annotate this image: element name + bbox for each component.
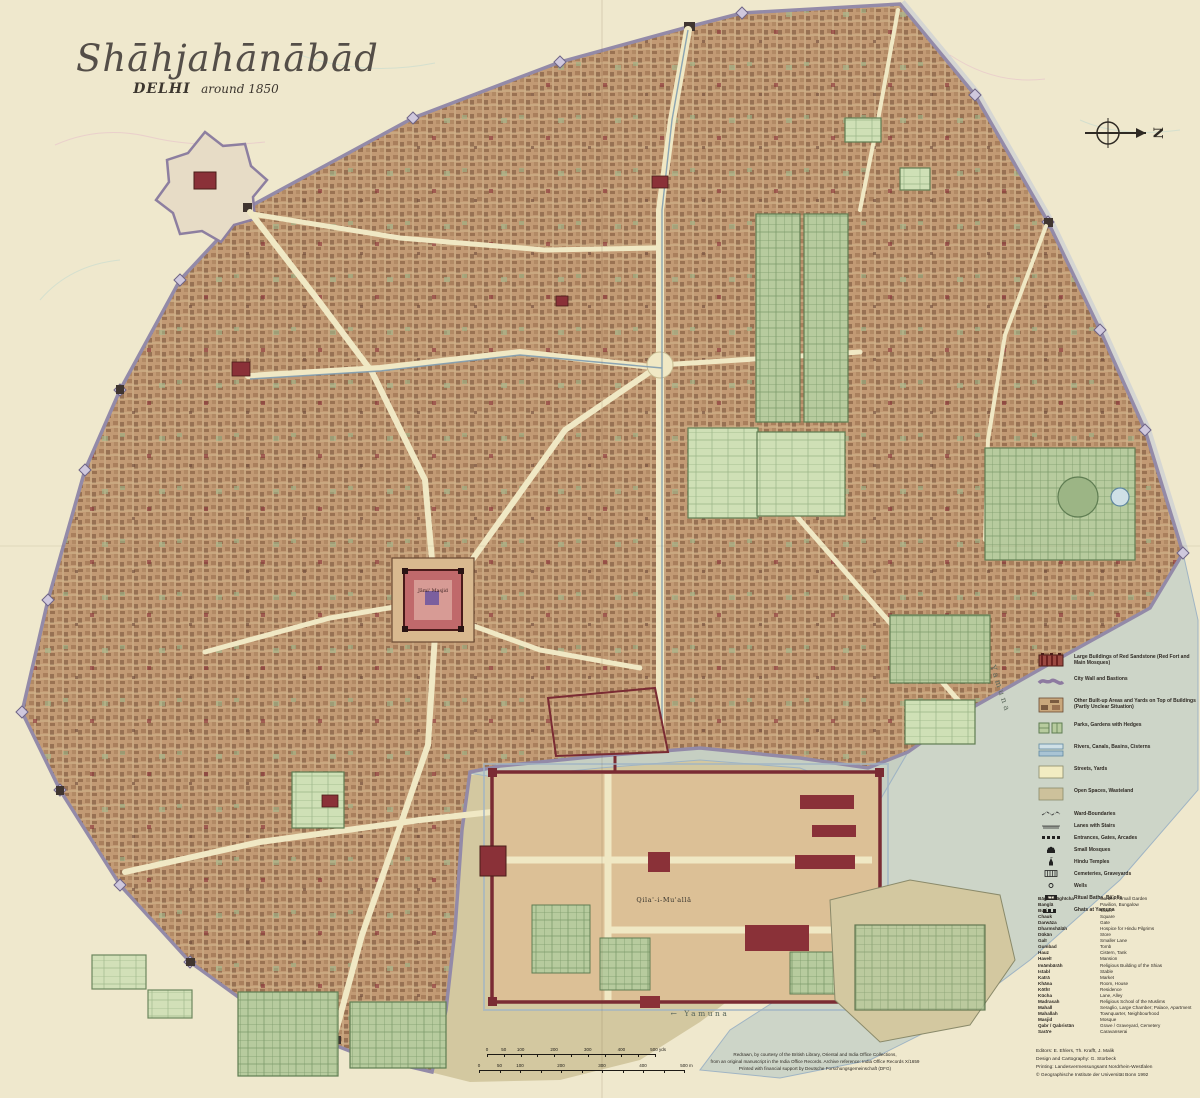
scale-tick-label: 200: [557, 1063, 565, 1068]
glossary-term: Sarā'e: [1038, 1029, 1100, 1035]
central-chowk: [647, 352, 673, 378]
river-label-bottom: ← Yamuna: [671, 1009, 730, 1018]
legend-symbol-label: Hindu Temples: [1074, 859, 1109, 865]
jami-masjid-shape: [392, 558, 474, 642]
scale-tick-label: 0: [486, 1047, 489, 1052]
legend-row-gardens: Parks, Gardens with Hedges: [1036, 720, 1200, 735]
map-canvas: N Qila'-i-Mu'allā Jāmi' Masjid Yamuna ← …: [0, 0, 1200, 1098]
legend-symbol-small-mosques: Small Mosques: [1036, 845, 1200, 854]
swatch-water-icon: [1036, 743, 1066, 757]
map-subtitle: DELHI around 1850: [76, 81, 336, 97]
scale-tick-label: 0: [478, 1063, 481, 1068]
legend-row-built-up: Other Built-up Areas and Yards on Top of…: [1036, 696, 1200, 713]
credit-line: Redrawn, by courtesy of the British Libr…: [600, 1051, 1030, 1058]
credits-center: Redrawn, by courtesy of the British Libr…: [600, 1051, 1030, 1072]
legend-symbol-label: Lanes with Stairs: [1074, 823, 1115, 829]
legend-symbol-label: Ward-Boundaries: [1074, 811, 1115, 817]
map-title: Shāhjahānābād: [76, 40, 336, 79]
credit-line: Printing: Landesvermessungsamt Nordrhein…: [1036, 1064, 1200, 1072]
credit-line: from an original manuscript in the India…: [600, 1058, 1030, 1065]
legend: Large Buildings of Red Sandstone (Red Fo…: [1036, 652, 1200, 917]
hindu-temple-icon: [1036, 857, 1066, 866]
scale-tick-label: 300: [584, 1047, 592, 1052]
legend-row-red-sandstone: Large Buildings of Red Sandstone (Red Fo…: [1036, 652, 1200, 667]
legend-symbol-wells: Wells: [1036, 881, 1200, 890]
ward-boundary-icon: [1036, 809, 1066, 818]
credit-line: Printed with financial support by Deutsc…: [600, 1065, 1030, 1072]
scale-tick-label: 200: [550, 1047, 558, 1052]
swatch-built-up-icon: [1036, 697, 1066, 713]
legend-symbol-cemeteries: Cemeteries, Graveyards: [1036, 869, 1200, 878]
legend-symbol-entrances: Entrances, Gates, Arcades: [1036, 833, 1200, 842]
small-mosque-icon: [1036, 845, 1066, 854]
lane-stairs-icon: [1036, 821, 1066, 830]
swatch-streets-icon: [1036, 765, 1066, 779]
legend-label: Parks, Gardens with Hedges: [1074, 720, 1142, 728]
river-island: [830, 880, 1015, 1042]
glossary-definition: Caravanserai: [1100, 1029, 1196, 1035]
title-block: Shāhjahānābād DELHI around 1850: [76, 40, 336, 97]
north-arrow-icon: N: [1085, 118, 1165, 148]
scale-tick-label: 100: [516, 1063, 524, 1068]
credit-line: Design and Cartography: G. Storbeck: [1036, 1056, 1200, 1064]
legend-row-water: Rivers, Canals, Basins, Cisterns: [1036, 742, 1200, 757]
subtitle-year: around 1850: [201, 82, 279, 96]
legend-symbol-hindu-temples: Hindu Temples: [1036, 857, 1200, 866]
swatch-gardens-icon: [1036, 721, 1066, 735]
legend-label: Open Spaces, Wasteland: [1074, 786, 1133, 794]
red-fort-complex: [480, 764, 888, 1010]
legend-symbol-ward-boundaries: Ward-Boundaries: [1036, 809, 1200, 818]
legend-row-streets: Streets, Yards: [1036, 764, 1200, 779]
swatch-city-wall-icon: [1036, 675, 1066, 689]
legend-row-open-spaces: Open Spaces, Wasteland: [1036, 786, 1200, 801]
mosque-label: Jāmi' Masjid: [417, 588, 448, 594]
legend-symbol-label: Wells: [1074, 883, 1087, 889]
fold-crease-vertical: [601, 0, 603, 1098]
scale-tick-label: 100: [517, 1047, 525, 1052]
legend-symbol-label: Cemeteries, Graveyards: [1074, 871, 1131, 877]
glossary-row: Sarā'eCaravanserai: [1038, 1029, 1196, 1035]
swatch-open-spaces-icon: [1036, 787, 1066, 801]
fold-crease-horizontal: [0, 545, 1200, 547]
legend-label: Large Buildings of Red Sandstone (Red Fo…: [1074, 652, 1200, 666]
gate-arcade-icon: [1036, 833, 1066, 842]
fort-label: Qila'-i-Mu'allā: [636, 896, 691, 904]
credits-right: Editors: E. Ehlers, Th. Krafft, J. Malik…: [1036, 1048, 1200, 1080]
legend-row-city-wall: City Wall and Bastions: [1036, 674, 1200, 689]
legend-symbol-label: Small Mosques: [1074, 847, 1110, 853]
credit-line: © Geographische Institute der Universitä…: [1036, 1072, 1200, 1080]
legend-symbol-label: Entrances, Gates, Arcades: [1074, 835, 1137, 841]
north-label: N: [1150, 127, 1165, 139]
swatch-red-sandstone-icon: [1036, 653, 1066, 667]
well-icon: [1036, 881, 1066, 890]
cemetery-icon: [1036, 869, 1066, 878]
legend-label: Other Built-up Areas and Yards on Top of…: [1074, 696, 1200, 710]
scale-tick-label: 50: [497, 1063, 502, 1068]
legend-label: Streets, Yards: [1074, 764, 1107, 772]
legend-symbol-lanes-stairs: Lanes with Stairs: [1036, 821, 1200, 830]
subtitle-city: DELHI: [133, 81, 190, 97]
legend-label: Rivers, Canals, Basins, Cisterns: [1074, 742, 1150, 750]
credit-line: Editors: E. Ehlers, Th. Krafft, J. Malik: [1036, 1048, 1200, 1056]
scale-tick-label: 50: [501, 1047, 506, 1052]
glossary-list: Bāgh / BāghīchaGarden / Small GardenBang…: [1038, 896, 1196, 1035]
legend-label: City Wall and Bastions: [1074, 674, 1128, 682]
